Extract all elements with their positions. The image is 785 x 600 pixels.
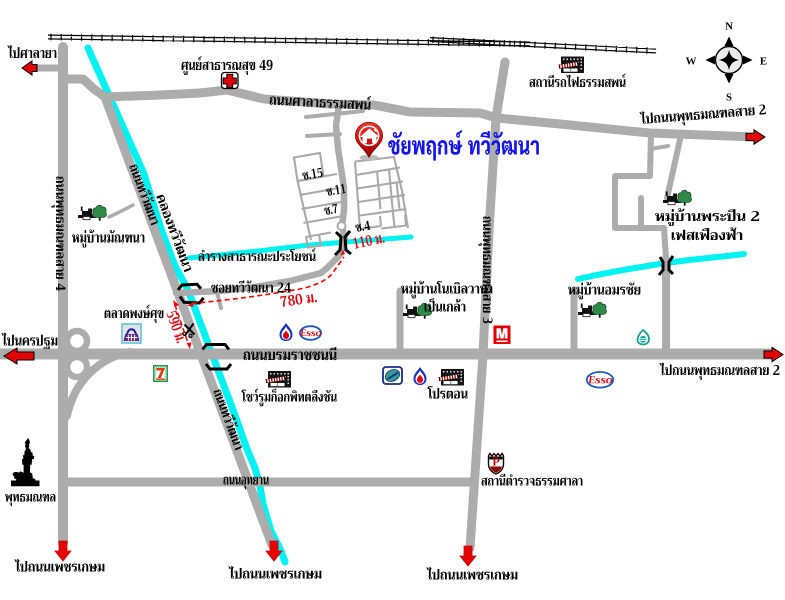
svg-text:W: W (686, 56, 697, 68)
svg-text:E: E (760, 56, 767, 68)
svg-text:N: N (725, 21, 733, 33)
svg-text:S: S (726, 92, 732, 104)
